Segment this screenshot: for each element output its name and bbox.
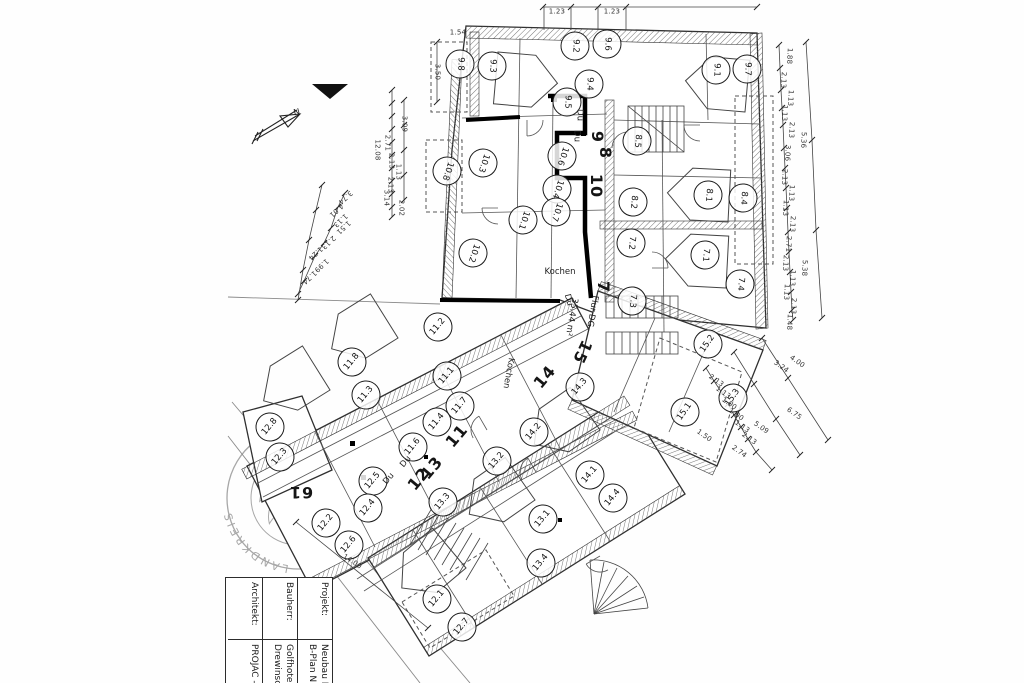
title-block-row-projekt: Projekt: Neubau Ferien B-Plan Nr.7 "G <box>297 578 332 683</box>
title-block-value: PROJAC - Dip <box>228 640 262 683</box>
title-block-value-line1: Neubau Ferien <box>319 644 329 683</box>
title-block-value: Golfhotel Balm Drewinscher V <box>263 640 297 683</box>
title-block-label: Architekt: <box>228 578 262 640</box>
scanned-floor-plan-page: LANDKREIS POMMERN <box>0 0 1024 683</box>
title-block-value: Neubau Ferien B-Plan Nr.7 "G <box>298 640 332 683</box>
title-block-row-architekt: Architekt: PROJAC - Dip <box>228 578 262 683</box>
title-block-value-line2: Drewinscher V <box>272 644 282 683</box>
title-block-value-line2: B-Plan Nr.7 "G <box>307 644 317 683</box>
floor-plan-drawing: LANDKREIS POMMERN <box>0 0 1024 683</box>
title-block-label: Bauherr: <box>263 578 297 640</box>
title-block-value-line1: Golfhotel Balm <box>284 644 294 683</box>
title-block-row-bauherr: Bauherr: Golfhotel Balm Drewinscher V <box>262 578 297 683</box>
title-block-label: Projekt: <box>298 578 332 640</box>
title-block: Projekt: Neubau Ferien B-Plan Nr.7 "G Ba… <box>225 577 333 683</box>
title-block-value-line1: PROJAC - Dip <box>249 644 259 683</box>
